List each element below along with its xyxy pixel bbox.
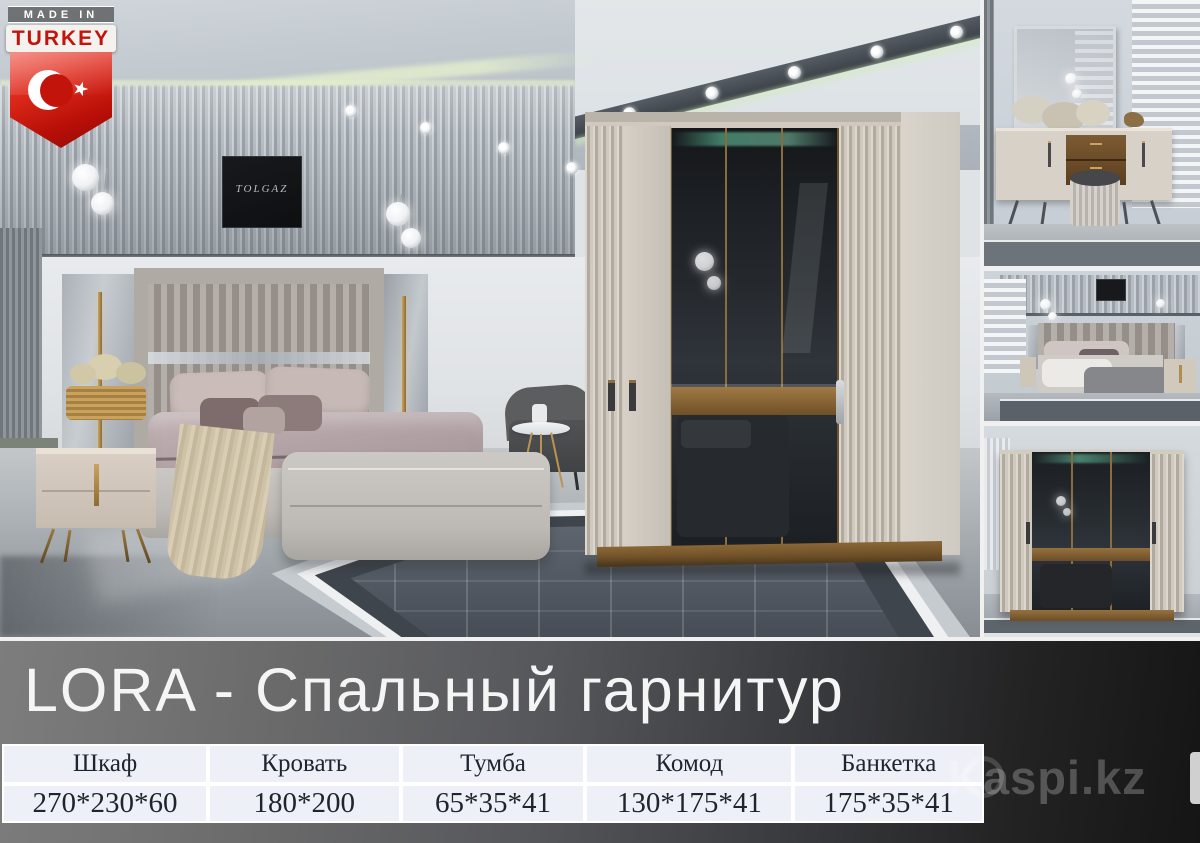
globe-lamp-icon [1048, 312, 1057, 321]
globe-lamp-icon [401, 228, 421, 248]
thumb-photo-dresser [984, 0, 1200, 266]
wardrobe-mini [1000, 450, 1184, 612]
globe-lamp-icon [72, 164, 99, 191]
gold-handle [1179, 365, 1182, 383]
bench-highlight [288, 468, 544, 470]
spec-column-dresser: Комод 130*175*41 [587, 746, 791, 821]
spec-value: 65*35*41 [403, 786, 584, 822]
wardrobe-side-panel [901, 112, 960, 555]
globe-lamp-icon [91, 192, 114, 215]
nightstand-leg [40, 529, 55, 564]
spec-header: Кровать [210, 746, 399, 782]
spec-value: 180*200 [210, 786, 399, 822]
dresser-leg [1122, 202, 1128, 226]
flowers-decor [1076, 100, 1110, 126]
wardrobe-plinth [1010, 610, 1174, 621]
door-handle-silver [836, 380, 844, 424]
glass-reflection-streak [782, 183, 828, 353]
door-handle [1142, 141, 1145, 167]
glass-gold-trim [671, 128, 672, 552]
vertical-separator [980, 0, 984, 637]
slat-bottom-shadow [998, 313, 1200, 316]
spec-header: Комод [587, 746, 791, 782]
frame-brand-text: TOLGAZ [223, 183, 301, 195]
horizontal-separator [984, 266, 1200, 271]
table-leg [550, 432, 564, 487]
info-panel: LORA - Спальный гарнитур Шкаф 270*230*60… [0, 637, 1200, 843]
reflected-globe-lamp-icon [1072, 89, 1082, 99]
wardrobe-fluted-door-left [585, 126, 623, 555]
rug [1000, 399, 1200, 421]
ad-poster: TOLGAZ [0, 0, 1200, 843]
spec-header: Тумба [403, 746, 584, 782]
gold-handle [1090, 167, 1102, 169]
gold-handle [94, 464, 99, 506]
spec-value: 270*230*60 [4, 786, 206, 822]
nightstand [1164, 359, 1196, 393]
wall-tv [1096, 279, 1126, 301]
crescent-cut [40, 74, 73, 107]
product-title: LORA - Спальный гарнитур [24, 655, 974, 725]
globe-lamp-icon [386, 202, 410, 226]
kaspi-watermark: Kaspi.kz [948, 750, 1147, 805]
wall-picture-frame: TOLGAZ [222, 156, 302, 228]
spotlight-icon [566, 162, 578, 174]
wardrobe-shadow [585, 562, 960, 575]
pouf-cushion [1070, 170, 1120, 186]
spotlight-icon [498, 142, 510, 154]
flowers-decor [70, 364, 96, 384]
nightstand-leg [64, 530, 72, 562]
badge-turkey-label: TURKEY [6, 25, 116, 52]
wardrobe-glass-doors [1032, 452, 1150, 612]
dresser-leg [1040, 202, 1046, 226]
door-handle [1026, 522, 1030, 544]
table-vase [532, 404, 547, 424]
spotlight-icon [787, 65, 803, 81]
spotlight-icon [420, 122, 432, 134]
nightstand [36, 418, 160, 568]
reflected-globe-lamp-icon [1063, 508, 1071, 516]
badge-made-in-label: MADE IN [8, 6, 114, 23]
spec-table: Шкаф 270*230*60 Кровать 180*200 Тумба 65… [2, 744, 984, 823]
door-handle [1152, 522, 1156, 544]
spec-column-bed: Кровать 180*200 [210, 746, 399, 821]
figurine-decor [1124, 112, 1144, 127]
reflected-globe-lamp-icon [695, 252, 714, 271]
kaspi-watermark-tile [1190, 752, 1200, 804]
reflected-bed [1040, 564, 1112, 608]
radiator-panel [984, 0, 994, 224]
nightstand [1020, 357, 1036, 387]
turkey-flag-shield [10, 52, 112, 148]
door-handle [629, 380, 636, 411]
spotlight-icon [704, 85, 720, 101]
spec-header: Шкаф [4, 746, 206, 782]
main-photo-bedroom: TOLGAZ [0, 0, 980, 637]
basket-decor [66, 386, 146, 420]
reflected-wood-band [1032, 548, 1150, 561]
wardrobe-glass-doors [671, 128, 839, 552]
reflected-pillow [681, 420, 751, 448]
spec-column-nightstand: Тумба 65*35*41 [403, 746, 584, 821]
door-handle [1048, 141, 1051, 167]
thumb-photo-bed [984, 271, 1200, 421]
spotlight-icon [345, 105, 357, 117]
wardrobe-fluted-door-right [839, 126, 901, 555]
reflected-globe-lamp-icon [1065, 73, 1077, 85]
rug [984, 240, 1200, 266]
bench-seam [290, 505, 542, 507]
made-in-turkey-badge: MADE IN TURKEY [6, 4, 124, 156]
spotlight-icon [869, 44, 885, 60]
spotlight-icon [949, 24, 965, 40]
drawer-seam [1066, 159, 1126, 161]
reflected-globe-lamp-icon [707, 276, 721, 290]
globe-lamp-icon [1040, 299, 1051, 310]
reflected-wood-band [671, 387, 839, 415]
door-handle [608, 380, 615, 411]
armchair-leg [574, 472, 579, 490]
thumb-photo-wardrobe [984, 426, 1200, 633]
flowers-decor [116, 362, 146, 384]
wardrobe [585, 112, 960, 572]
glass-led-glow [671, 132, 839, 146]
gold-handle [1090, 143, 1102, 145]
dresser-leg [1008, 200, 1019, 226]
spec-column-wardrobe: Шкаф 270*230*60 [4, 746, 206, 821]
nightstand-leg [122, 530, 130, 562]
spec-value: 130*175*41 [587, 786, 791, 822]
glass-led-glow [1032, 454, 1150, 463]
reflected-globe-lamp-icon [1056, 496, 1066, 506]
nightstand-leg [136, 529, 151, 564]
horizontal-separator [984, 421, 1200, 426]
globe-lamp-icon [1156, 299, 1165, 308]
wardrobe-flat-door-left [623, 126, 671, 555]
headboard-mirror-strip [148, 352, 370, 364]
